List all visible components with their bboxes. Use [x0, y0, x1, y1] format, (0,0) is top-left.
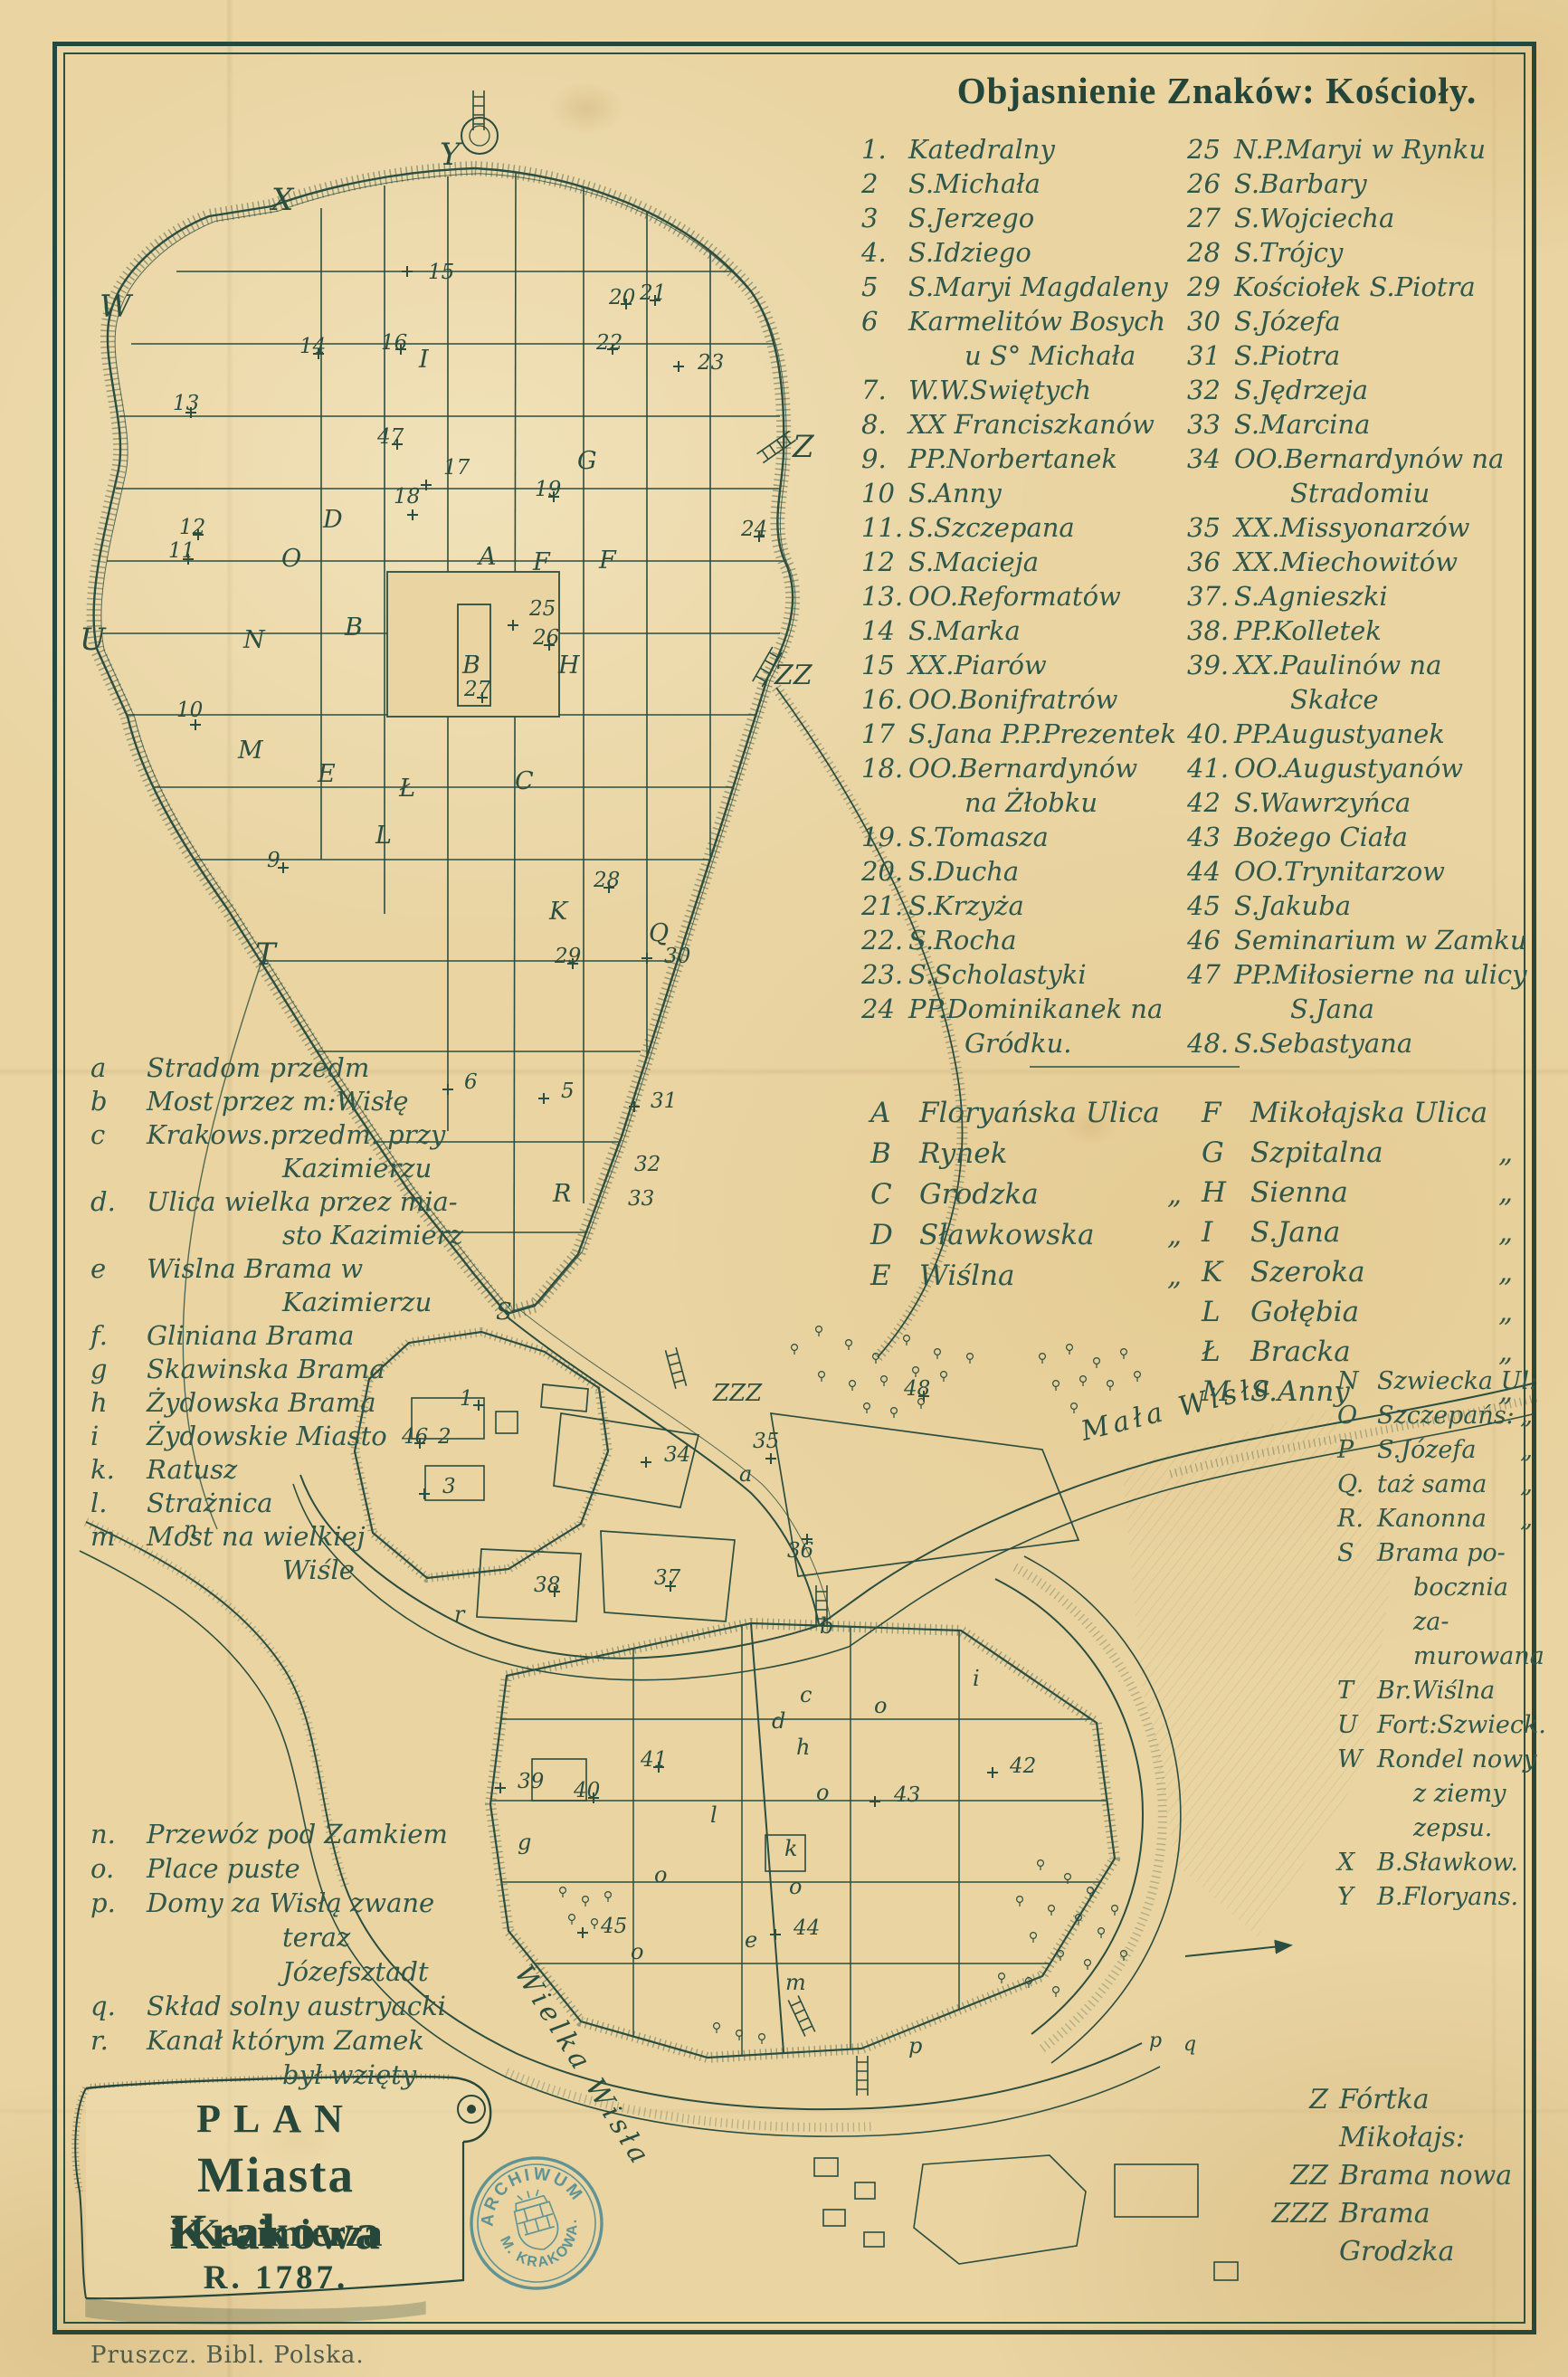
legend-item-label: Kościołek S.Piotra: [1234, 270, 1531, 304]
legend-item-number: 26: [1187, 166, 1234, 201]
legend-item-label: S.Sebastyana: [1234, 1026, 1531, 1060]
legend-item: 46 Seminarium w Zamku: [1187, 923, 1531, 957]
legend-item: 15 XX.Piarów: [861, 648, 1198, 682]
legend-item-label: XX.Miechowitów: [1234, 545, 1531, 579]
street-letter: I: [1202, 1212, 1250, 1252]
legend-item-label: S.Agnieszki: [1234, 579, 1531, 613]
legend-item-number: 5: [861, 270, 908, 304]
legend-item: 43 Bożego Ciała: [1187, 820, 1531, 854]
legend-item: 29 Kościołek S.Piotra: [1187, 270, 1531, 304]
legend-item-number: 12: [861, 545, 908, 579]
street-item: Q. taż sama „: [1337, 1468, 1538, 1502]
street-item: C Grodzka „: [870, 1174, 1187, 1215]
scanned-map-sheet: { "header": { "title": "Objasnienie Znak…: [0, 0, 1568, 2377]
legend-item-number: 20.: [861, 854, 908, 889]
street-name: Br.Wiślna: [1377, 1674, 1495, 1708]
cartouche-title-year: R. 1787.: [100, 2258, 452, 2297]
legend-item-number: 38.: [1187, 613, 1234, 648]
cartouche-title-plan: PLAN: [100, 2096, 452, 2142]
street-item: F Mikołajska Ulica: [1202, 1093, 1518, 1133]
legend-item-label: S.Wojciecha: [1234, 201, 1531, 235]
legend-item: 3 S.Jerzego: [861, 201, 1198, 235]
street-name: Szpitalna: [1250, 1133, 1383, 1173]
legend-item-label: S.Józefa: [1234, 304, 1531, 338]
street-name: Fort:Szwieck.: [1377, 1708, 1546, 1743]
street-letter: P: [1337, 1433, 1377, 1468]
note-item: e Wislna Brama w Kazimierzu: [90, 1252, 470, 1319]
note-item: k. Ratusz: [90, 1453, 470, 1487]
street-letter: R.: [1337, 1502, 1377, 1536]
street-item: D Sławkowska „: [870, 1215, 1187, 1256]
legend-item-number: 35: [1187, 510, 1234, 545]
note-letter: p.: [90, 1886, 147, 1989]
church-legend-column-2: 25 N.P.Maryi w Rynku 26 S.Barbary 27 S.W…: [1187, 132, 1531, 1060]
gate-note-item: Z Fórtka Mikołajs:: [1258, 2081, 1529, 2157]
note-letter: q.: [90, 1989, 147, 2023]
legend-item: 24 PP.Dominikanek na Gródku.: [861, 992, 1198, 1060]
note-item: c Krakows.przedm. przy Kazimierzu: [90, 1118, 470, 1185]
gate-note-item: ZZZ Brama Grodzka: [1258, 2195, 1529, 2271]
legend-item-label: OO.Augustyanów: [1234, 751, 1531, 785]
legend-item-label: OO.Trynitarzow: [1234, 854, 1531, 889]
legend-item-label: PP.Norbertanek: [908, 442, 1198, 476]
note-item: b Most przez m:Wisłę: [90, 1085, 470, 1118]
street-letter: G: [1202, 1133, 1250, 1173]
street-ditto-mark: „: [1167, 1215, 1187, 1256]
street-name: S.Jana: [1250, 1212, 1340, 1252]
legend-item: 1. Katedralny: [861, 132, 1198, 166]
legend-item-label: S.Ducha: [908, 854, 1198, 889]
legend-item-label: S.Jerzego: [908, 201, 1198, 235]
street-ditto-mark: „: [1520, 1433, 1538, 1468]
legend-item-label: S.Jana P.P.Prezentek: [908, 717, 1198, 751]
legend-item-label: S.Trójcy: [1234, 235, 1531, 270]
legend-item-number: 43: [1187, 820, 1234, 854]
street-letter: N: [1337, 1364, 1377, 1399]
street-name: Wiślna: [919, 1256, 1015, 1297]
legend-item-label: OO.Bernardynów na Żłobku: [908, 751, 1198, 820]
street-item: T Br.Wiślna: [1337, 1674, 1538, 1708]
street-item: Y B.Floryans.: [1337, 1880, 1538, 1915]
legend-item-number: 23.: [861, 957, 908, 992]
notes-legend-a-m: a Stradom przedm b Most przez m:Wisłę c …: [90, 1051, 470, 1587]
note-label: Ratusz: [147, 1453, 470, 1487]
street-ditto-mark: „: [1498, 1173, 1518, 1212]
note-item: m Most na wielkiej Wiśle: [90, 1520, 470, 1587]
legend-item: 10 S.Anny: [861, 476, 1198, 510]
legend-item-label: Seminarium w Zamku: [1234, 923, 1531, 957]
legend-item: 39. XX.Paulinów na Skałce: [1187, 648, 1531, 717]
street-item: P S.Józefa „: [1337, 1433, 1538, 1468]
street-letter: C: [870, 1174, 919, 1215]
legend-item: 45 S.Jakuba: [1187, 889, 1531, 923]
street-name: taż sama: [1377, 1468, 1487, 1502]
legend-item: 4. S.Idziego: [861, 235, 1198, 270]
street-ditto-mark: „: [1167, 1174, 1187, 1215]
street-item: O Szczepańs: „: [1337, 1399, 1538, 1433]
legend-item-label: S.Macieja: [908, 545, 1198, 579]
legend-item-number: 41.: [1187, 751, 1234, 785]
note-letter: f.: [90, 1319, 147, 1353]
legend-item-number: 15: [861, 648, 908, 682]
note-label: Most na wielkiej Wiśle: [147, 1520, 470, 1587]
street-letter: U: [1337, 1708, 1377, 1743]
church-legend-column-1: 1. Katedralny 2 S.Michała 3 S.Jerzego 4.…: [861, 132, 1198, 1060]
note-item: o. Place puste: [90, 1851, 480, 1886]
legend-item: 23. S.Scholastyki: [861, 957, 1198, 992]
note-item: f. Gliniana Brama: [90, 1319, 470, 1353]
note-item: q. Skład solny austryacki: [90, 1989, 480, 2023]
note-item: l. Strażnica: [90, 1487, 470, 1520]
legend-item-label: Karmelitów Bosych u S° Michała: [908, 304, 1198, 373]
note-letter: n.: [90, 1817, 147, 1851]
street-letter: E: [870, 1256, 919, 1297]
street-item: G Szpitalna „: [1202, 1133, 1518, 1173]
legend-item: 11. S.Szczepana: [861, 510, 1198, 545]
street-item: E Wiślna „: [870, 1256, 1187, 1297]
legend-item: 7. W.W.Swiętych: [861, 373, 1198, 407]
street-item: B Rynek: [870, 1134, 1187, 1174]
legend-item-label: XX Franciszkanów: [908, 407, 1198, 442]
legend-item-number: 29: [1187, 270, 1234, 304]
note-item: r. Kanał którym Zamek był wzięty: [90, 2023, 480, 2092]
note-item: h Żydowska Brama: [90, 1386, 470, 1420]
note-label: Most przez m:Wisłę: [147, 1085, 470, 1118]
street-item: A Floryańska Ulica: [870, 1093, 1187, 1134]
legend-item-number: 46: [1187, 923, 1234, 957]
street-name: Szczepańs:: [1377, 1399, 1515, 1433]
gate-letter: Z: [1258, 2081, 1339, 2157]
legend-item-label: XX.Piarów: [908, 648, 1198, 682]
legend-item-number: 7.: [861, 373, 908, 407]
note-label: Gliniana Brama: [147, 1319, 470, 1353]
note-letter: m: [90, 1520, 147, 1587]
note-label: Ulica wielka przez mia- sto Kazimierz: [147, 1185, 470, 1252]
legend-item: 5 S.Maryi Magdaleny: [861, 270, 1198, 304]
note-label: Kanał którym Zamek był wzięty: [147, 2023, 480, 2092]
street-letter: Ł: [1202, 1332, 1250, 1372]
street-letter: H: [1202, 1173, 1250, 1212]
note-label: Domy za Wisłą zwane teraz Józefsztadt: [147, 1886, 480, 1989]
gate-note-item: ZZ Brama nowa: [1258, 2157, 1529, 2195]
legend-item-number: 1.: [861, 132, 908, 166]
note-letter: k.: [90, 1453, 147, 1487]
street-name: Szwiecka Ul:: [1377, 1364, 1537, 1399]
legend-item: 36 XX.Miechowitów: [1187, 545, 1531, 579]
street-letter: F: [1202, 1093, 1250, 1133]
legend-item-number: 17: [861, 717, 908, 751]
street-ditto-mark: „: [1498, 1212, 1518, 1252]
street-name: Brama po- bocznia za- murowana: [1377, 1536, 1544, 1674]
street-ditto-mark: „: [1520, 1468, 1538, 1502]
street-legend-column-3: N Szwiecka Ul: O Szczepańs: „ P S.Józefa…: [1337, 1364, 1538, 1915]
street-name: Mikołajska Ulica: [1250, 1093, 1487, 1133]
legend-item-label: S.Rocha: [908, 923, 1198, 957]
legend-item-number: 30: [1187, 304, 1234, 338]
legend-item-number: 4.: [861, 235, 908, 270]
street-letter: W: [1337, 1743, 1377, 1846]
legend-item-label: S.Krzyża: [908, 889, 1198, 923]
legend-item-number: 10: [861, 476, 908, 510]
legend-item-number: 33: [1187, 407, 1234, 442]
legend-item: 41. OO.Augustyanów: [1187, 751, 1531, 785]
legend-item: 17 S.Jana P.P.Prezentek: [861, 717, 1198, 751]
street-letter: K: [1202, 1252, 1250, 1292]
note-label: Krakows.przedm. przy Kazimierzu: [147, 1118, 470, 1185]
street-ditto-mark: „: [1167, 1256, 1187, 1297]
legend-item-label: S.Barbary: [1234, 166, 1531, 201]
note-letter: o.: [90, 1851, 147, 1886]
legend-item: 25 N.P.Maryi w Rynku: [1187, 132, 1531, 166]
legend-item-number: 37.: [1187, 579, 1234, 613]
legend-item-number: 2: [861, 166, 908, 201]
legend-item: 38. PP.Kolletek: [1187, 613, 1531, 648]
note-letter: l.: [90, 1487, 147, 1520]
legend-item-number: 31: [1187, 338, 1234, 373]
legend-item: 44 OO.Trynitarzow: [1187, 854, 1531, 889]
note-item: p. Domy za Wisłą zwane teraz Józefsztadt: [90, 1886, 480, 1989]
legend-item: 22. S.Rocha: [861, 923, 1198, 957]
note-label: Skawinska Brama: [147, 1353, 470, 1386]
street-ditto-mark: „: [1498, 1133, 1518, 1173]
legend-item-number: 18.: [861, 751, 908, 820]
street-item: X B.Sławkow.: [1337, 1846, 1538, 1880]
legend-item-label: S.Scholastyki: [908, 957, 1198, 992]
legend-item-number: 9.: [861, 442, 908, 476]
legend-item: 9. PP.Norbertanek: [861, 442, 1198, 476]
legend-item: 31 S.Piotra: [1187, 338, 1531, 373]
legend-item-label: N.P.Maryi w Rynku: [1234, 132, 1531, 166]
legend-item-number: 34: [1187, 442, 1234, 510]
legend-item-number: 28: [1187, 235, 1234, 270]
note-letter: r.: [90, 2023, 147, 2092]
legend-item-label: W.W.Swiętych: [908, 373, 1198, 407]
legend-item-number: 27: [1187, 201, 1234, 235]
legend-item-label: S.Idziego: [908, 235, 1198, 270]
legend-item: 28 S.Trójcy: [1187, 235, 1531, 270]
legend-title: Objasnienie Znaków: Kościoły.: [905, 69, 1529, 112]
street-item: R. Kanonna „: [1337, 1502, 1538, 1536]
street-name: B.Floryans.: [1377, 1880, 1518, 1915]
legend-item-number: 44: [1187, 854, 1234, 889]
note-letter: a: [90, 1051, 147, 1085]
legend-item-number: 13.: [861, 579, 908, 613]
legend-item: 14 S.Marka: [861, 613, 1198, 648]
legend-item: 2 S.Michała: [861, 166, 1198, 201]
street-ditto-mark: „: [1520, 1502, 1538, 1536]
legend-item-number: 6: [861, 304, 908, 373]
legend-item-label: Bożego Ciała: [1234, 820, 1531, 854]
street-name: Grodzka: [919, 1174, 1039, 1215]
note-letter: h: [90, 1386, 147, 1420]
note-label: Stradom przedm: [147, 1051, 470, 1085]
note-letter: b: [90, 1085, 147, 1118]
street-name: Kanonna: [1377, 1502, 1487, 1536]
street-name: Sławkowska: [919, 1215, 1094, 1256]
gate-letter: ZZZ: [1258, 2195, 1339, 2271]
legend-item: 34 OO.Bernardynów na Stradomiu: [1187, 442, 1531, 510]
street-letter: X: [1337, 1846, 1377, 1880]
street-item: N Szwiecka Ul:: [1337, 1364, 1538, 1399]
legend-item-label: S.Wawrzyńca: [1234, 785, 1531, 820]
note-label: Żydowska Brama: [147, 1386, 470, 1420]
legend-item: 40. PP.Augustyanek: [1187, 717, 1531, 751]
legend-item-number: 42: [1187, 785, 1234, 820]
legend-item-number: 40.: [1187, 717, 1234, 751]
note-label: Wislna Brama w Kazimierzu: [147, 1252, 470, 1319]
library-credit: Pruszcz. Bibl. Polska.: [90, 2342, 365, 2369]
legend-item-number: 11.: [861, 510, 908, 545]
gate-label: Brama nowa: [1339, 2157, 1512, 2195]
street-letter: B: [870, 1134, 919, 1174]
street-letter: O: [1337, 1399, 1377, 1433]
legend-item-number: 19.: [861, 820, 908, 854]
street-name: Sienna: [1250, 1173, 1348, 1212]
legend-item-label: S.Marka: [908, 613, 1198, 648]
note-label: Place puste: [147, 1851, 480, 1886]
legend-item: 19. S.Tomasza: [861, 820, 1198, 854]
legend-item: 26 S.Barbary: [1187, 166, 1531, 201]
legend-item: 37. S.Agnieszki: [1187, 579, 1531, 613]
street-ditto-mark: „: [1498, 1252, 1518, 1292]
note-item: n. Przewóz pod Zamkiem: [90, 1817, 480, 1851]
legend-item-label: XX.Paulinów na Skałce: [1234, 648, 1531, 717]
street-name: B.Sławkow.: [1377, 1846, 1518, 1880]
gate-notes-legend: Z Fórtka Mikołajs: ZZ Brama nowa ZZZ Bra…: [1258, 2081, 1529, 2271]
notes-legend-n-r: n. Przewóz pod Zamkiem o. Place puste p.…: [90, 1817, 480, 2092]
street-item: H Sienna „: [1202, 1173, 1518, 1212]
legend-item-label: S.Michała: [908, 166, 1198, 201]
legend-item: 20. S.Ducha: [861, 854, 1198, 889]
legend-item: 30 S.Józefa: [1187, 304, 1531, 338]
note-item: a Stradom przedm: [90, 1051, 470, 1085]
cartouche-title-kazimierz: i Kazimierza: [100, 2211, 452, 2256]
legend-item-label: S.Tomasza: [908, 820, 1198, 854]
street-letter: S: [1337, 1536, 1377, 1674]
legend-item: 8. XX Franciszkanów: [861, 407, 1198, 442]
legend-item-label: OO.Reformatów: [908, 579, 1198, 613]
note-letter: g: [90, 1353, 147, 1386]
legend-item-label: S.Szczepana: [908, 510, 1198, 545]
note-letter: e: [90, 1252, 147, 1319]
legend-item: 35 XX.Missyonarzów: [1187, 510, 1531, 545]
legend-item: 33 S.Marcina: [1187, 407, 1531, 442]
street-name: S.Anny: [1250, 1372, 1350, 1412]
street-name: Rondel nowy z ziemy zepsu.: [1377, 1743, 1538, 1846]
legend-item-number: 8.: [861, 407, 908, 442]
gate-label: Fórtka Mikołajs:: [1339, 2081, 1529, 2157]
note-item: g Skawinska Brama: [90, 1353, 470, 1386]
note-label: Przewóz pod Zamkiem: [147, 1817, 480, 1851]
legend-item-label: OO.Bernardynów na Stradomiu: [1234, 442, 1531, 510]
street-letter: Q.: [1337, 1468, 1377, 1502]
note-letter: d.: [90, 1185, 147, 1252]
legend-item-label: PP.Miłosierne na ulicy S.Jana: [1234, 957, 1531, 1026]
legend-item-number: 32: [1187, 373, 1234, 407]
note-letter: c: [90, 1118, 147, 1185]
gate-letter: ZZ: [1258, 2157, 1339, 2195]
legend-item-label: S.Maryi Magdaleny: [908, 270, 1198, 304]
legend-item: 42 S.Wawrzyńca: [1187, 785, 1531, 820]
legend-item-label: XX.Missyonarzów: [1234, 510, 1531, 545]
street-letter: M: [1202, 1372, 1250, 1412]
legend-item: 27 S.Wojciecha: [1187, 201, 1531, 235]
legend-item-label: PP.Augustyanek: [1234, 717, 1531, 751]
legend-item: 13. OO.Reformatów: [861, 579, 1198, 613]
legend-divider: [1030, 1066, 1240, 1068]
street-name: S.Józefa: [1377, 1433, 1477, 1468]
legend-item-label: S.Jędrzeja: [1234, 373, 1531, 407]
legend-item-label: PP.Dominikanek na Gródku.: [908, 992, 1198, 1060]
street-letter: T: [1337, 1674, 1377, 1708]
legend-item-number: 3: [861, 201, 908, 235]
legend-item-number: 25: [1187, 132, 1234, 166]
street-letter: Y: [1337, 1880, 1377, 1915]
street-item: L Gołębia „: [1202, 1292, 1518, 1332]
legend-item: 16. OO.Bonifratrów: [861, 682, 1198, 717]
street-letter: L: [1202, 1292, 1250, 1332]
legend-item-label: S.Marcina: [1234, 407, 1531, 442]
legend-item-label: Katedralny: [908, 132, 1198, 166]
street-letter: A: [870, 1093, 919, 1134]
legend-item: 12 S.Macieja: [861, 545, 1198, 579]
legend-item-label: S.Piotra: [1234, 338, 1531, 373]
legend-item-number: 47: [1187, 957, 1234, 1026]
legend-item-number: 45: [1187, 889, 1234, 923]
legend-item-number: 22.: [861, 923, 908, 957]
legend-item-number: 21.: [861, 889, 908, 923]
street-ditto-mark: „: [1498, 1292, 1518, 1332]
legend-item-label: S.Jakuba: [1234, 889, 1531, 923]
street-item: U Fort:Szwieck.: [1337, 1708, 1538, 1743]
note-item: d. Ulica wielka przez mia- sto Kazimierz: [90, 1185, 470, 1252]
note-item: i Żydowskie Miasto: [90, 1420, 470, 1453]
legend-item-number: 39.: [1187, 648, 1234, 717]
legend-item-number: 48.: [1187, 1026, 1234, 1060]
legend-item-label: PP.Kolletek: [1234, 613, 1531, 648]
street-name: Gołębia: [1250, 1292, 1359, 1332]
legend-item-number: 16.: [861, 682, 908, 717]
legend-item-number: 14: [861, 613, 908, 648]
street-legend-column-1: A Floryańska Ulica B Rynek C Grodzka „ D…: [870, 1093, 1187, 1297]
note-label: Żydowskie Miasto: [147, 1420, 470, 1453]
legend-item-label: S.Anny: [908, 476, 1198, 510]
legend-item: 21. S.Krzyża: [861, 889, 1198, 923]
note-label: Skład solny austryacki: [147, 1989, 480, 2023]
legend-item-number: 36: [1187, 545, 1234, 579]
legend-item: 6 Karmelitów Bosych u S° Michała: [861, 304, 1198, 373]
legend-item: 47 PP.Miłosierne na ulicy S.Jana: [1187, 957, 1531, 1026]
legend-item: 48. S.Sebastyana: [1187, 1026, 1531, 1060]
street-ditto-mark: „: [1520, 1399, 1538, 1433]
street-item: W Rondel nowy z ziemy zepsu.: [1337, 1743, 1538, 1846]
street-name: Floryańska Ulica: [919, 1093, 1160, 1134]
legend-item: 32 S.Jędrzeja: [1187, 373, 1531, 407]
gate-label: Brama Grodzka: [1339, 2195, 1529, 2271]
street-item: K Szeroka „: [1202, 1252, 1518, 1292]
street-name: Szeroka: [1250, 1252, 1365, 1292]
street-item: I S.Jana „: [1202, 1212, 1518, 1252]
legend-item-label: OO.Bonifratrów: [908, 682, 1198, 717]
note-letter: i: [90, 1420, 147, 1453]
legend-item-number: 24: [861, 992, 908, 1060]
legend-item: 18. OO.Bernardynów na Żłobku: [861, 751, 1198, 820]
note-label: Strażnica: [147, 1487, 470, 1520]
street-letter: D: [870, 1215, 919, 1256]
street-name: Bracka: [1250, 1332, 1351, 1372]
street-item: S Brama po- bocznia za- murowana: [1337, 1536, 1538, 1674]
street-name: Rynek: [919, 1134, 1007, 1174]
